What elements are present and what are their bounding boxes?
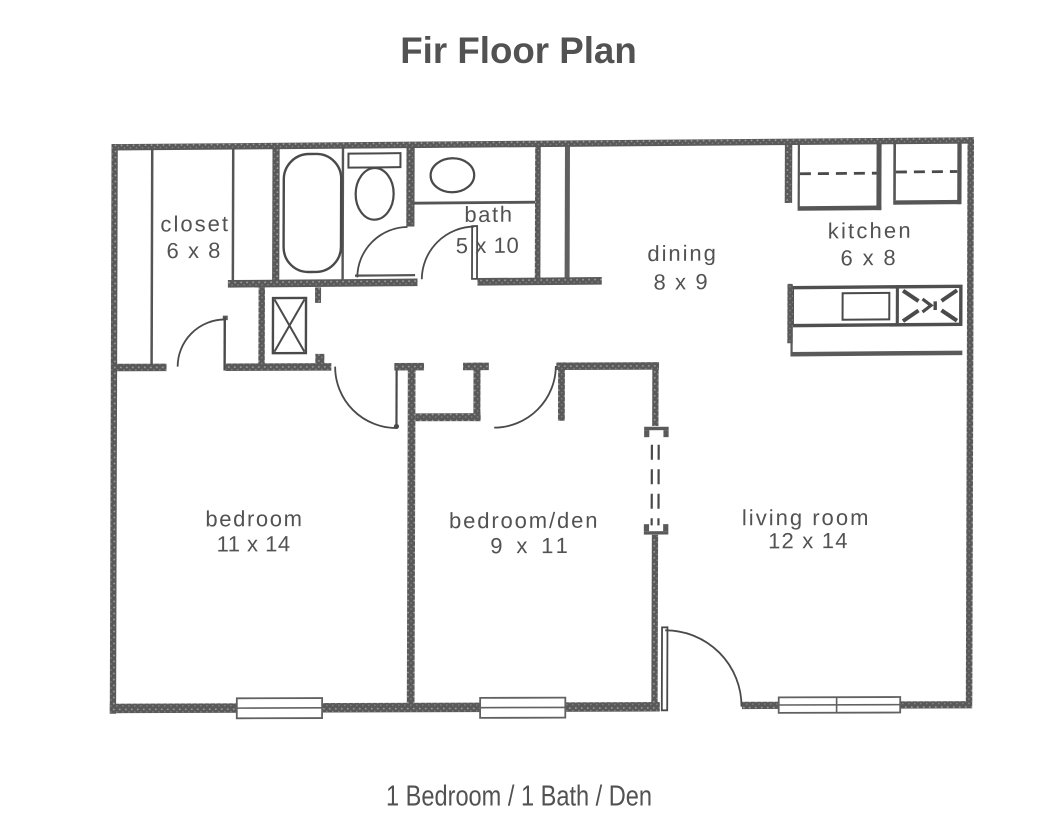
svg-text:1 Bedroom / 1 Bath / Den: 1 Bedroom / 1 Bath / Den (386, 781, 652, 813)
svg-text:bedroom/den: bedroom/den (449, 508, 598, 533)
svg-text:Fir Floor Plan: Fir Floor Plan (400, 29, 637, 71)
svg-text:12 x 14: 12 x 14 (768, 528, 847, 553)
svg-text:6 x 8: 6 x 8 (166, 238, 220, 263)
svg-text:dining: dining (647, 241, 715, 267)
svg-text:bedroom: bedroom (205, 506, 302, 531)
svg-text:closet: closet (160, 211, 228, 237)
svg-text:9 x 11: 9 x 11 (490, 533, 568, 558)
svg-text:5 x 10: 5 x 10 (456, 233, 519, 259)
svg-text:6 x 8: 6 x 8 (841, 245, 896, 270)
svg-text:kitchen: kitchen (828, 218, 911, 244)
svg-text:11 x 14: 11 x 14 (217, 531, 290, 556)
svg-text:bath: bath (464, 202, 512, 227)
svg-text:living room: living room (742, 505, 869, 530)
svg-text:8 x 9: 8 x 9 (653, 269, 707, 294)
